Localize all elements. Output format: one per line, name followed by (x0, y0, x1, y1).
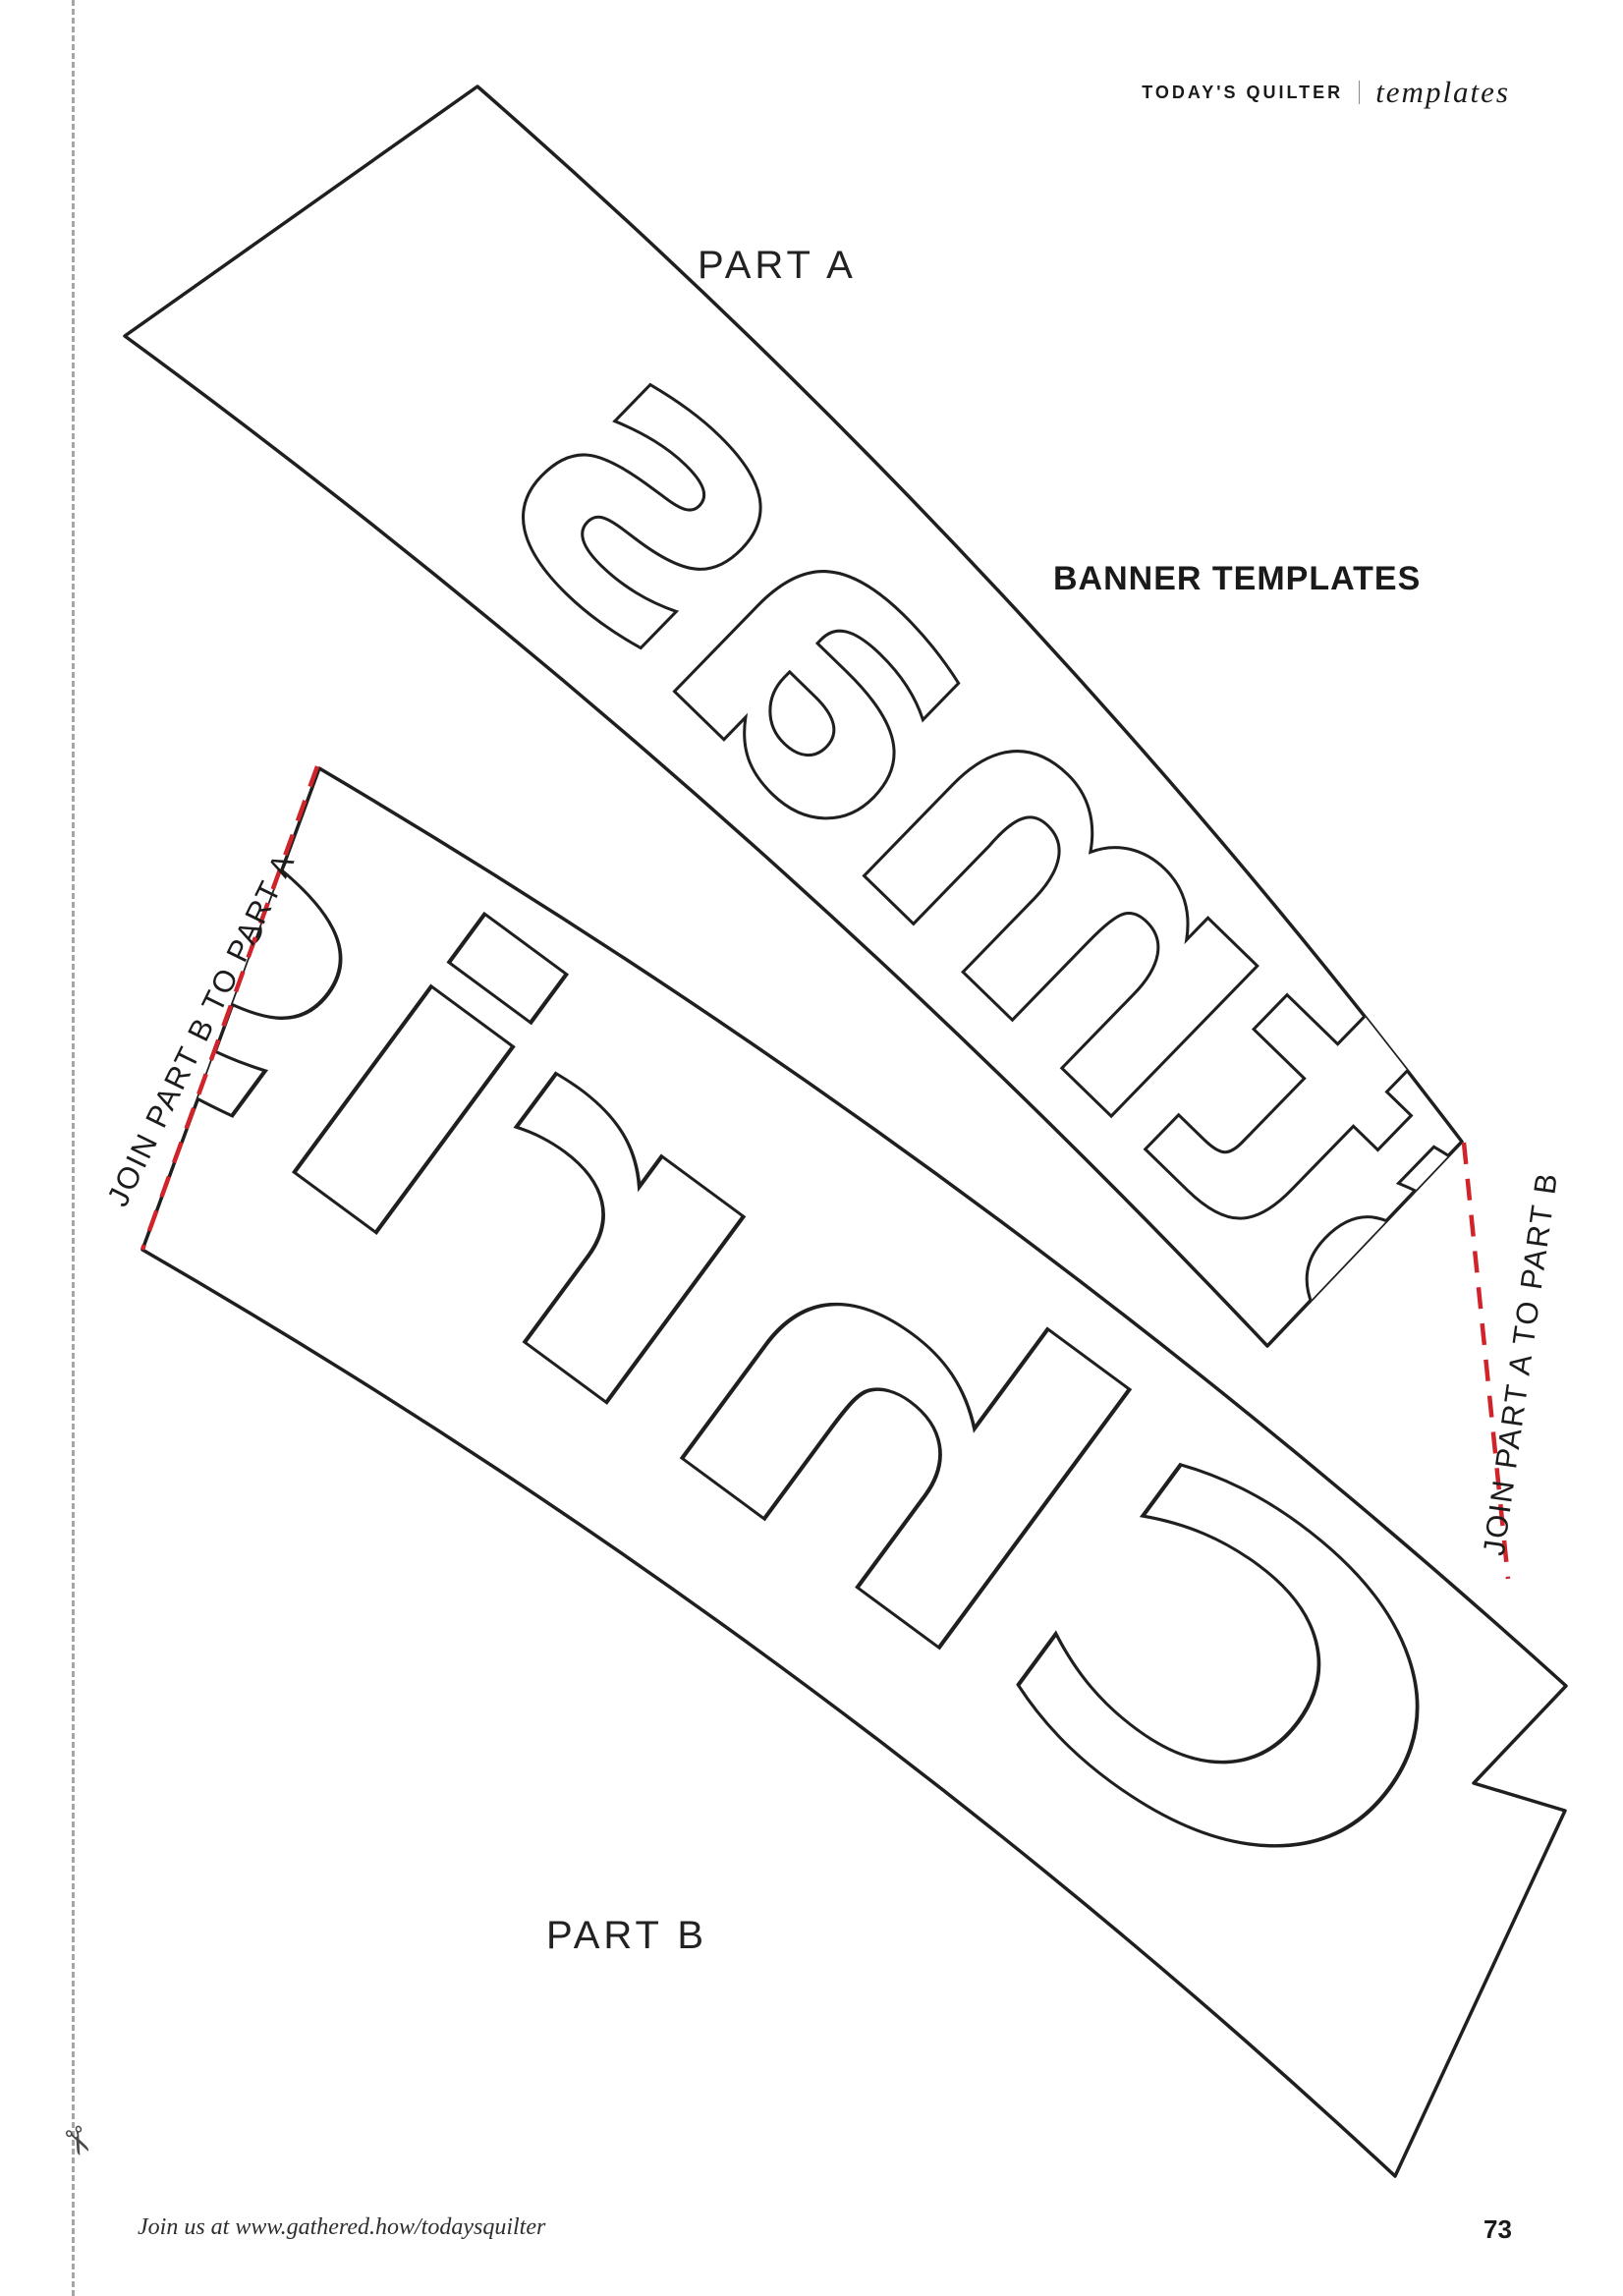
magazine-template-page: ✂ TODAY'S QUILTER templates PART A BANNE… (0, 0, 1623, 2296)
page-number: 73 (1483, 2214, 1512, 2245)
footer-link: Join us at www.gathered.how/todaysquilte… (138, 2214, 545, 2241)
banner-template-drawing: stmas Chris (0, 0, 1623, 2296)
